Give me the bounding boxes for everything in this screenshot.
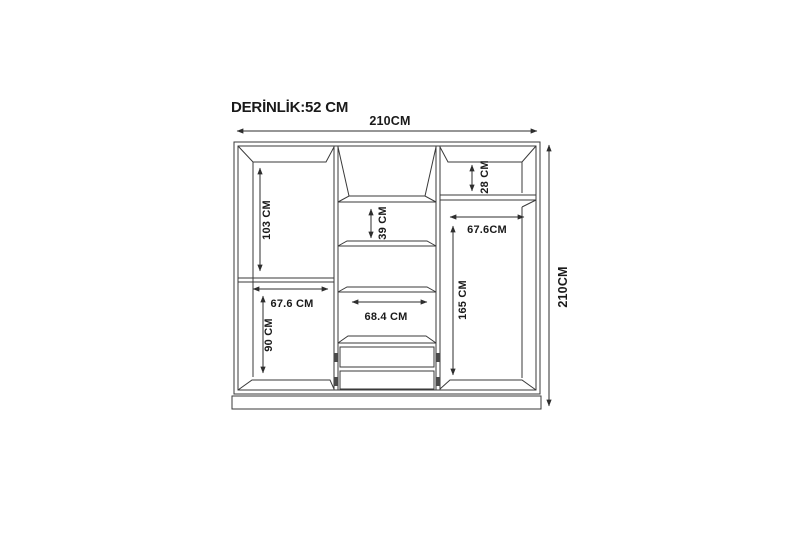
cabinet-structure <box>232 142 541 409</box>
dimension-left-upper-height: 103 CM <box>260 168 273 271</box>
diagram-canvas: 210CM 210CM 103 CM 67.6 CM 90 CM 39 CM <box>0 0 800 533</box>
middle-column <box>334 147 440 389</box>
wardrobe-dimension-diagram: 210CM 210CM 103 CM 67.6 CM 90 CM 39 CM <box>0 0 800 533</box>
left-column-back-top-edge <box>238 146 334 162</box>
dimension-overall-width: 210CM <box>237 114 537 131</box>
drawer-lower-slide-right <box>436 377 440 386</box>
middle-top-perspective-right <box>425 147 436 196</box>
right-column-floor-edge <box>440 380 536 390</box>
drawer-upper <box>340 347 434 367</box>
drawer-upper-slide-right <box>436 353 440 362</box>
dimension-middle-shelf-gap: 39 CM <box>371 206 389 239</box>
carcass-inner-edge <box>238 146 536 390</box>
middle-shelf-2-top <box>338 241 436 246</box>
right-top-shelf-height-label: 28 CM <box>479 160 491 193</box>
right-section-height-label: 165 CM <box>457 280 469 320</box>
left-column-floor-edge <box>238 380 334 390</box>
right-column-back-top-edge <box>440 146 536 162</box>
dimension-annotations: 210CM 210CM 103 CM 67.6 CM 90 CM 39 CM <box>231 99 570 406</box>
drawer-upper-slide-left <box>334 353 338 362</box>
left-upper-height-label: 103 CM <box>261 200 273 240</box>
right-column-shelf-perspective <box>522 200 536 207</box>
dimension-middle-lower-width: 68.4 CM <box>352 302 427 323</box>
overall-height-label: 210CM <box>556 266 570 307</box>
middle-shelf-3-top <box>338 287 436 292</box>
middle-top-perspective-left <box>338 147 349 196</box>
dimension-left-lower-width: 67.6 CM <box>253 289 328 310</box>
left-lower-height-label: 90 CM <box>263 318 275 351</box>
dimension-right-top-shelf-height: 28 CM <box>472 160 491 193</box>
middle-shelf-gap-label: 39 CM <box>377 206 389 239</box>
drawer-lower <box>340 371 434 389</box>
dimension-right-section-width: 67.6CM <box>450 217 524 236</box>
middle-shelf-4-top <box>338 336 436 343</box>
right-section-width-label: 67.6CM <box>467 224 507 236</box>
middle-lower-width-label: 68.4 CM <box>365 311 408 323</box>
plinth-base <box>232 396 541 409</box>
left-lower-width-label: 67.6 CM <box>271 298 314 310</box>
overall-width-label: 210CM <box>369 114 410 128</box>
carcass-outer-edge <box>234 142 540 394</box>
dimension-overall-height: 210CM <box>549 145 570 406</box>
middle-shelf-1-top <box>338 196 436 202</box>
depth-label: DERİNLİK:52 CM <box>231 99 348 116</box>
drawer-lower-slide-left <box>334 377 338 386</box>
dimension-right-section-height: 165 CM <box>453 226 469 375</box>
left-column <box>238 146 334 390</box>
